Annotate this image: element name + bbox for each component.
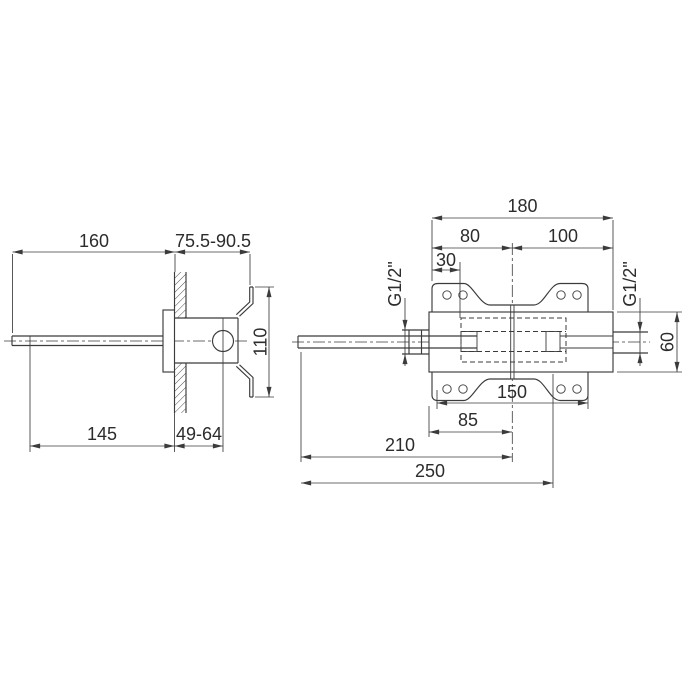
dim-plate-height-label: 110 [251,328,271,357]
dim-overall-length-label: 250 [415,461,445,481]
dim-body-height-label: 60 [658,332,678,352]
dim-wall-depth-label: 75.5-90.5 [175,231,251,251]
dim-thread-left-label: G1/2" [385,261,405,306]
escutcheon-flange [163,310,175,372]
dim-spout-tip-to-center-label: 210 [385,435,415,455]
drawing-page: 160 75.5-90.5 110 145 49-64 [0,0,700,700]
dim-plate-width-label: 150 [497,382,527,402]
dim-overall-width-label: 180 [507,196,537,216]
dim-left-of-center-label: 80 [460,226,480,246]
front-view: 180 80 100 30 G1/2" G1/2" 60 150 85 [292,196,682,488]
side-view: 160 75.5-90.5 110 145 49-64 [4,231,274,452]
dim-body-left-to-center-label: 85 [458,410,478,430]
dim-spout-length-label: 160 [79,231,109,251]
wall-hatch-bottom [175,363,187,413]
dim-wall-to-handle-label: 49-64 [176,424,222,444]
inlet-pipe-lines [613,332,648,353]
dim-right-of-center-label: 100 [548,226,578,246]
dim-edge-to-inlet-label: 30 [436,250,456,270]
wall-hatch-top [175,272,187,318]
technical-drawing-canvas: 160 75.5-90.5 110 145 49-64 [0,0,700,700]
valve-body-front [429,312,613,372]
dim-spout-reach-label: 145 [87,424,117,444]
dim-thread-right-label: G1/2" [620,261,640,306]
